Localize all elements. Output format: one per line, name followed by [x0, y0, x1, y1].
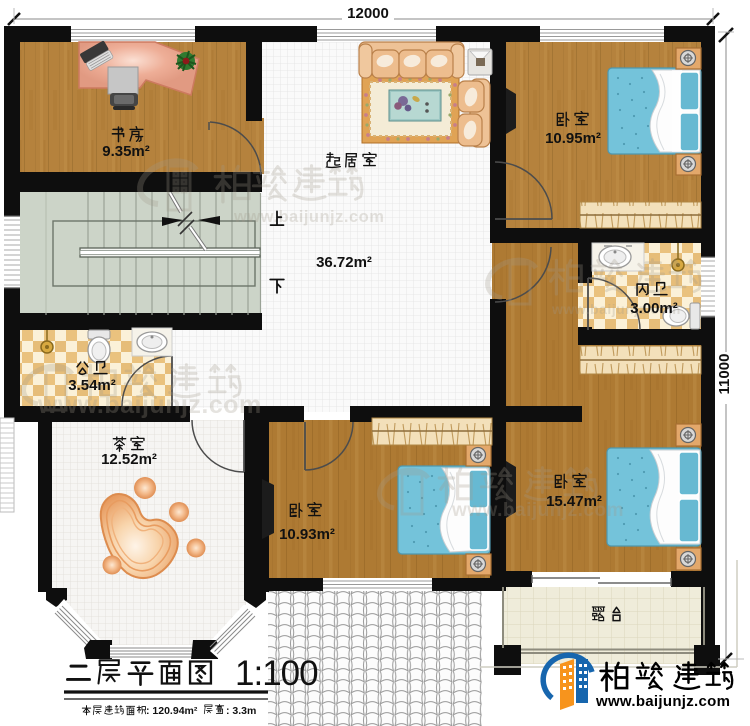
svg-text:3.00m²: 3.00m² — [630, 300, 678, 317]
svg-text:3.54m²: 3.54m² — [68, 377, 116, 394]
svg-text:36.72m²: 36.72m² — [316, 254, 372, 271]
svg-text:15.47m²: 15.47m² — [546, 493, 602, 510]
svg-text:10.93m²: 10.93m² — [279, 526, 335, 543]
svg-text:www.baijunjz.com: www.baijunjz.com — [37, 391, 262, 419]
svg-text:10.95m²: 10.95m² — [545, 130, 601, 147]
svg-text:www.baijunjz.com: www.baijunjz.com — [233, 208, 384, 226]
svg-text:1:100: 1:100 — [235, 654, 318, 693]
svg-text:www.baijunjz.com: www.baijunjz.com — [595, 693, 730, 710]
svg-text:9.35m²: 9.35m² — [102, 143, 150, 160]
svg-text:11000: 11000 — [716, 354, 733, 395]
svg-text:: 3.3m: : 3.3m — [226, 705, 256, 717]
svg-text:12.52m²: 12.52m² — [101, 451, 157, 468]
svg-text:: 120.94m²: : 120.94m² — [146, 705, 198, 717]
svg-text:12000: 12000 — [347, 5, 389, 22]
